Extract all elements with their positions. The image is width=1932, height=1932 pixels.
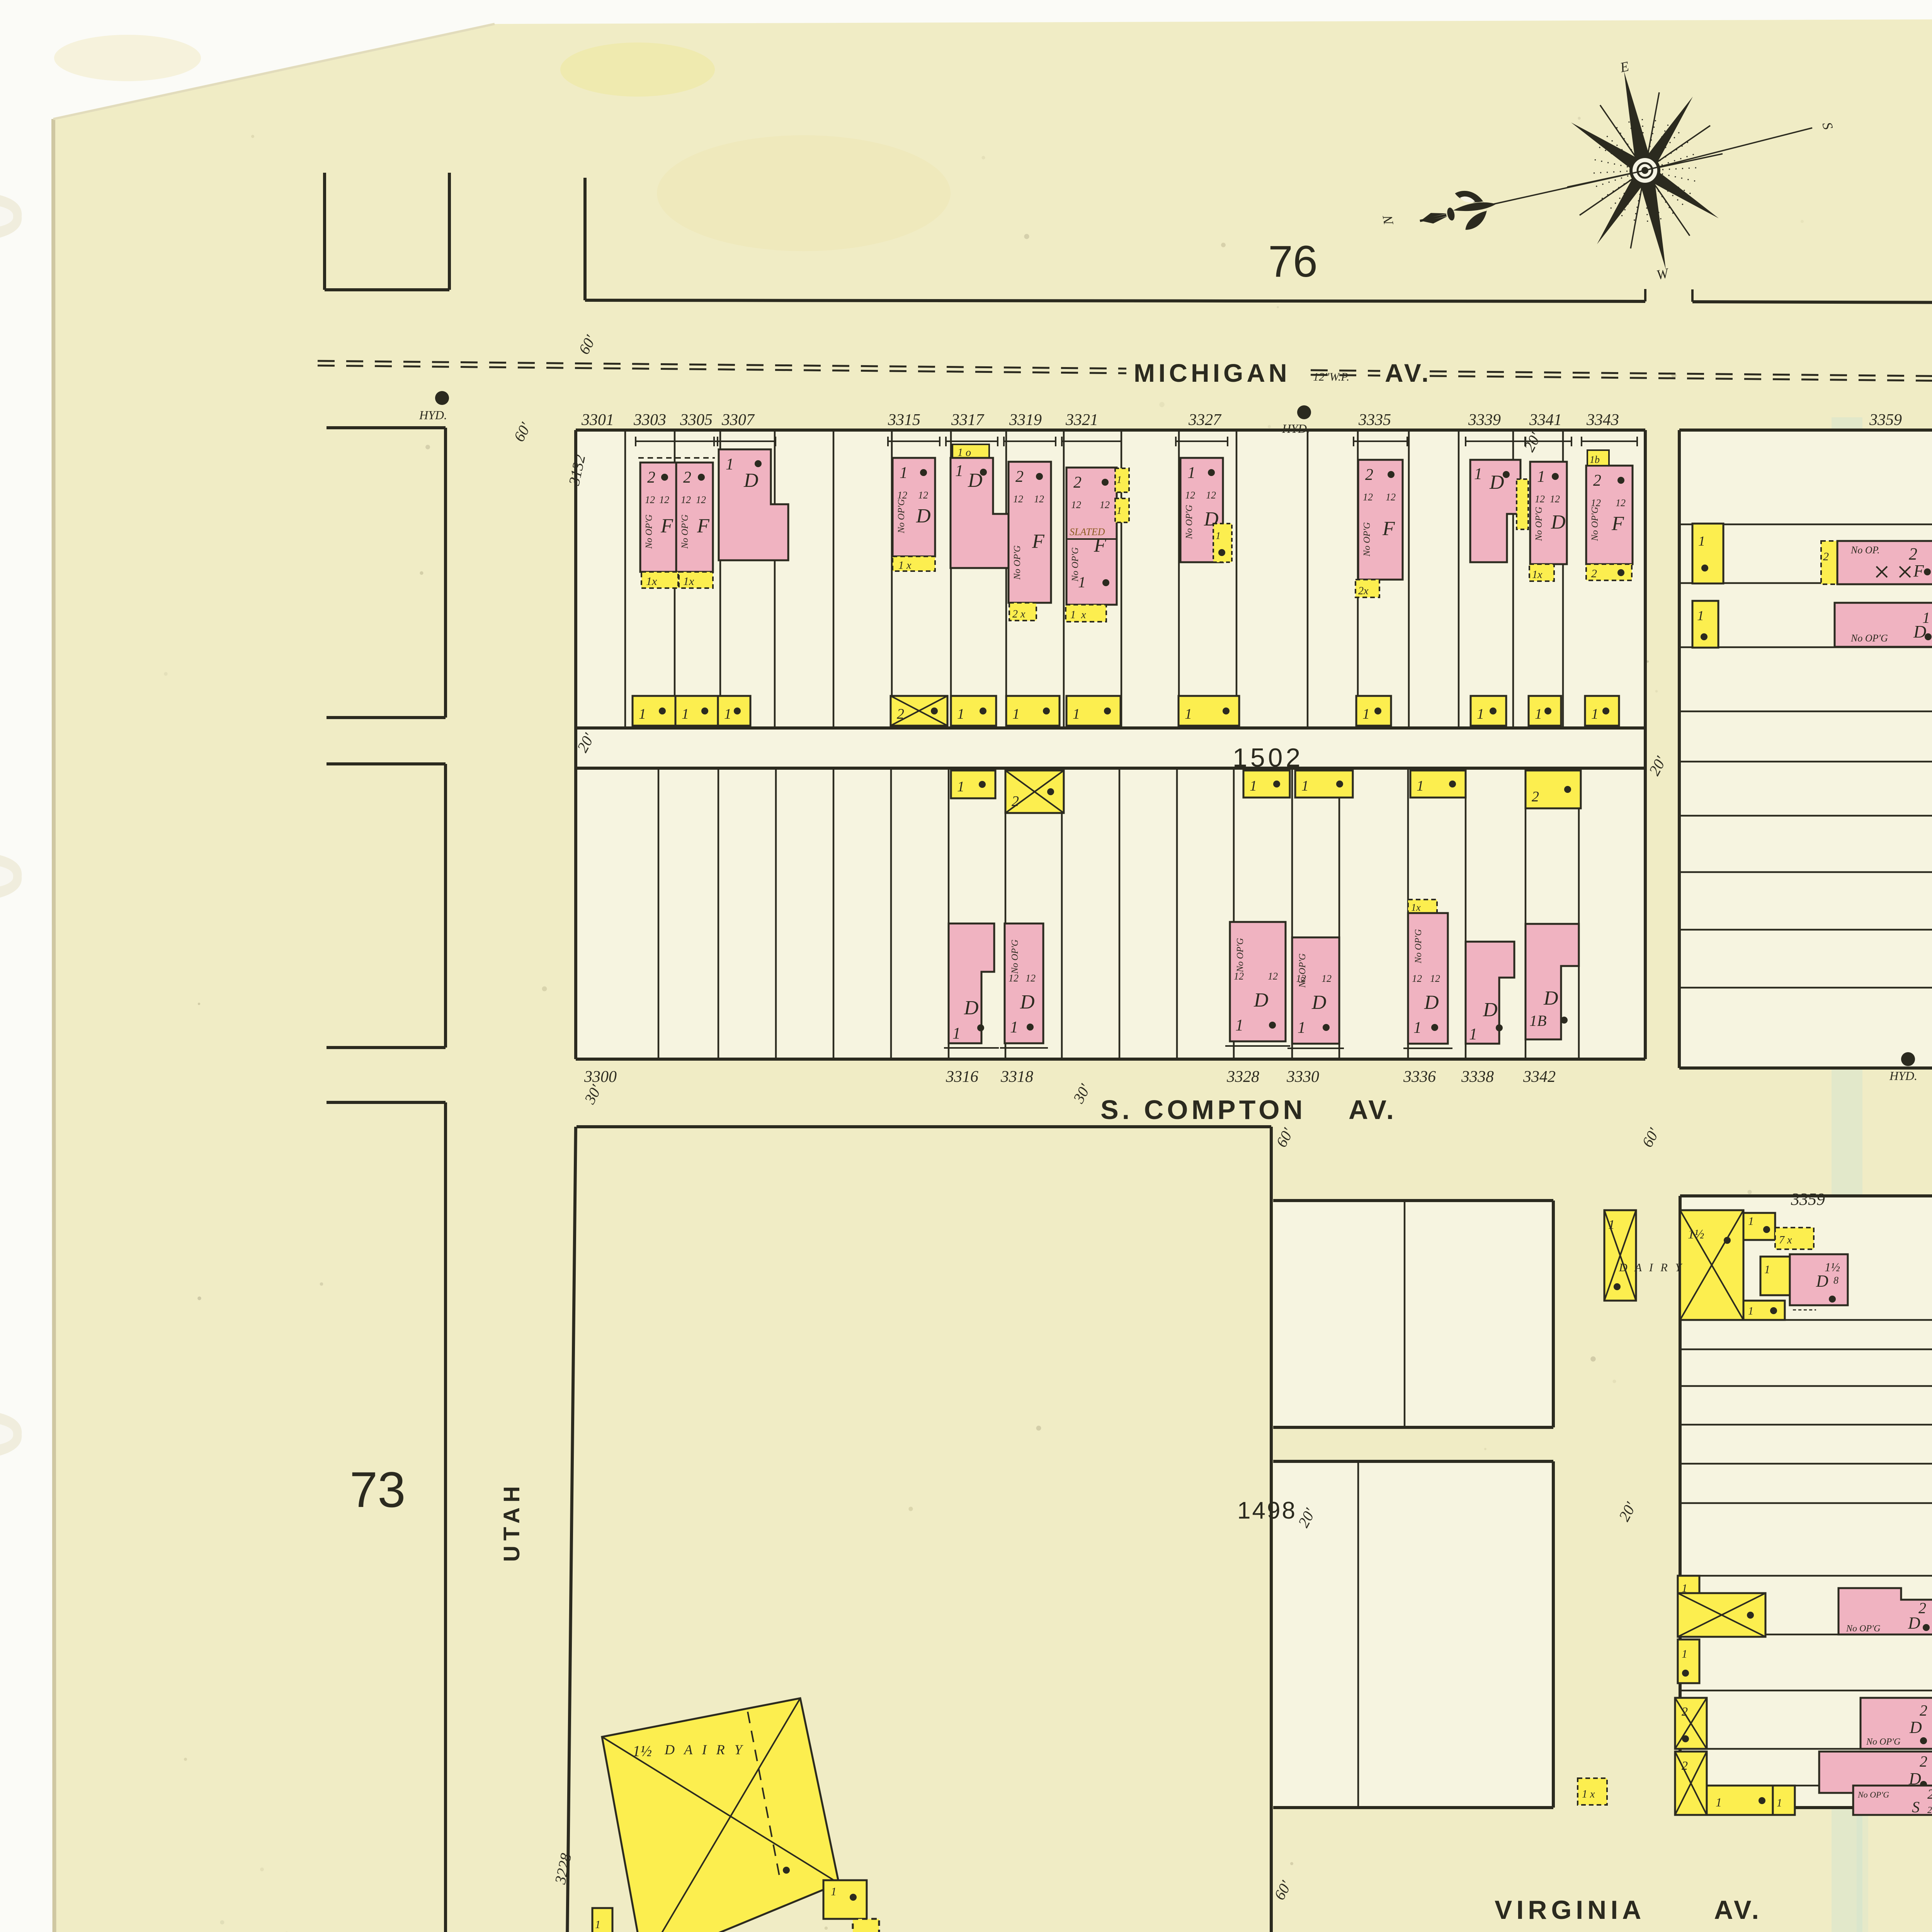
svg-text:3305: 3305 (680, 411, 713, 429)
svg-text:D A I R Y: D A I R Y (1619, 1261, 1684, 1274)
svg-text:12: 12 (1100, 499, 1110, 510)
svg-text:2: 2 (897, 706, 904, 722)
svg-text:3359: 3359 (1869, 411, 1902, 429)
svg-text:3359: 3359 (1791, 1190, 1825, 1209)
svg-text:12: 12 (1535, 493, 1545, 505)
svg-text:12: 12 (1013, 493, 1023, 505)
svg-text:1: 1 (1608, 1218, 1615, 1232)
svg-text:D: D (1909, 1718, 1922, 1737)
svg-text:No OP'G: No OP'G (1857, 1790, 1889, 1799)
svg-text:D: D (1483, 999, 1498, 1021)
svg-text:2x: 2x (1358, 585, 1369, 597)
svg-text:3316: 3316 (946, 1068, 978, 1086)
svg-text:No OP'G: No OP'G (680, 515, 690, 549)
svg-text:2: 2 (1365, 466, 1373, 484)
svg-text:1: 1 (1235, 1017, 1243, 1034)
svg-text:1: 1 (1298, 1019, 1306, 1037)
svg-text:D: D (743, 469, 759, 492)
svg-text:2: 2 (1015, 468, 1024, 486)
svg-text:2: 2 (1823, 550, 1829, 563)
svg-text:3319: 3319 (1009, 411, 1042, 429)
svg-text:73: 73 (350, 1461, 406, 1518)
svg-text:1: 1 (1117, 474, 1122, 485)
svg-text:1: 1 (1591, 706, 1599, 722)
svg-text:HYD.: HYD. (1889, 1069, 1917, 1083)
svg-text:12: 12 (1185, 490, 1195, 501)
svg-text:2: 2 (1073, 474, 1082, 492)
svg-text:2: 2 (1682, 1704, 1688, 1718)
svg-text:SLATED: SLATED (1070, 526, 1105, 537)
svg-text:1: 1 (957, 706, 964, 722)
svg-text:No OP'G: No OP'G (1184, 505, 1194, 539)
svg-text:1: 1 (726, 456, 734, 473)
svg-text:No OP'G: No OP'G (1534, 507, 1544, 541)
svg-text:12: 12 (1268, 971, 1278, 982)
svg-text:1: 1 (1535, 706, 1542, 722)
svg-text:1: 1 (1764, 1263, 1770, 1276)
svg-text:2: 2 (1593, 472, 1601, 490)
svg-text:D: D (1908, 1614, 1920, 1633)
svg-text:1: 1 (1185, 706, 1192, 722)
svg-text:12: 12 (659, 494, 669, 505)
svg-text:12: 12 (681, 494, 691, 505)
svg-text:1: 1 (831, 1885, 837, 1898)
svg-text:1: 1 (1477, 706, 1484, 722)
svg-text:12: 12 (1363, 492, 1373, 503)
svg-text:D: D (1551, 511, 1566, 533)
svg-text:No OP'G: No OP'G (1298, 954, 1308, 988)
svg-text:3336: 3336 (1403, 1068, 1436, 1086)
svg-text:2: 2 (1591, 567, 1597, 580)
svg-text:1498: 1498 (1237, 1497, 1297, 1524)
svg-text:1 x: 1 x (898, 560, 912, 571)
svg-text:D: D (1311, 992, 1327, 1014)
svg-text:2: 2 (1012, 793, 1019, 810)
svg-text:D: D (1913, 622, 1926, 641)
svg-text:1: 1 (1187, 464, 1196, 482)
svg-text:3307: 3307 (721, 411, 755, 429)
svg-text:1: 1 (1417, 778, 1424, 794)
svg-text:1: 1 (1469, 1026, 1477, 1043)
svg-text:D: D (1543, 987, 1558, 1009)
svg-text:1: 1 (639, 706, 646, 722)
svg-text:F: F (1382, 518, 1395, 540)
svg-text:76: 76 (1268, 237, 1318, 286)
svg-text:F: F (1094, 534, 1107, 556)
svg-text:HYD.: HYD. (1282, 422, 1310, 435)
svg-text:1: 1 (682, 706, 689, 722)
svg-text:1: 1 (724, 706, 731, 722)
svg-text:1½: 1½ (633, 1742, 652, 1760)
svg-text:1: 1 (1698, 533, 1705, 549)
svg-text:1: 1 (957, 779, 964, 795)
svg-text:1B: 1B (1529, 1012, 1546, 1029)
svg-text:1½: 1½ (1688, 1227, 1704, 1242)
svg-text:12: 12 (645, 494, 655, 505)
svg-text:1: 1 (955, 462, 963, 480)
svg-text:1: 1 (1250, 778, 1257, 794)
svg-text:1: 1 (858, 1930, 863, 1932)
svg-text:3335: 3335 (1358, 411, 1391, 429)
svg-text:1: 1 (1413, 1019, 1422, 1037)
svg-text:1: 1 (1010, 1019, 1018, 1036)
svg-text:12: 12 (696, 494, 706, 505)
svg-text:AV.: AV. (1385, 359, 1431, 387)
svg-text:D: D (1489, 471, 1504, 493)
svg-text:3341: 3341 (1529, 411, 1562, 429)
svg-text:1: 1 (1697, 608, 1704, 623)
svg-text:No OP'G: No OP'G (644, 515, 654, 549)
svg-text:3338: 3338 (1461, 1068, 1494, 1086)
svg-text:1: 1 (1716, 1795, 1722, 1809)
svg-text:No OP.: No OP. (1850, 544, 1880, 556)
svg-text:1: 1 (1474, 465, 1482, 483)
svg-text:12: 12 (1026, 973, 1036, 984)
svg-text:1: 1 (1117, 505, 1122, 516)
svg-text:12: 12 (1071, 499, 1081, 510)
svg-text:3315: 3315 (888, 411, 920, 429)
svg-text:F: F (697, 515, 710, 537)
svg-text:12: 12 (1321, 973, 1332, 984)
svg-text:D: D (964, 997, 979, 1019)
svg-text:No OP'G: No OP'G (1012, 546, 1022, 580)
svg-text:1: 1 (952, 1025, 961, 1043)
svg-text:3303: 3303 (633, 411, 666, 429)
svg-text:3321: 3321 (1065, 411, 1098, 429)
svg-text:8: 8 (1833, 1275, 1838, 1286)
svg-text:1b: 1b (1590, 454, 1600, 465)
svg-text:26': 26' (1927, 1805, 1932, 1815)
svg-text:12: 12 (1412, 973, 1422, 984)
svg-text:3327: 3327 (1188, 411, 1222, 429)
svg-text:1x: 1x (646, 575, 657, 588)
svg-text:S: S (1912, 1798, 1920, 1816)
svg-text:D: D (1020, 991, 1035, 1013)
svg-text:1: 1 (900, 464, 908, 482)
svg-text:12: 12 (1616, 497, 1626, 509)
svg-text:D: D (1816, 1272, 1828, 1291)
svg-text:AV.: AV. (1349, 1095, 1396, 1125)
svg-text:F: F (1913, 561, 1924, 580)
svg-text:2: 2 (1927, 1786, 1932, 1802)
svg-text:F: F (660, 515, 673, 537)
svg-text:1x: 1x (683, 575, 694, 588)
svg-text:1: 1 (595, 1919, 600, 1931)
svg-text:No OP'G: No OP'G (1235, 938, 1245, 973)
svg-text:1x: 1x (1532, 569, 1543, 581)
svg-text:No OP'G: No OP'G (1362, 522, 1372, 557)
svg-text:No OP'G: No OP'G (1010, 940, 1020, 974)
svg-text:1: 1 (1748, 1215, 1754, 1228)
svg-text:12"W.P.: 12"W.P. (1313, 371, 1349, 383)
svg-text:1: 1 (1777, 1797, 1782, 1809)
svg-text:No OP'G: No OP'G (1590, 507, 1600, 541)
svg-text:3318: 3318 (1000, 1068, 1033, 1086)
svg-text:1 o: 1 o (957, 447, 971, 459)
svg-text:D A I R Y: D A I R Y (664, 1742, 745, 1757)
svg-text:2: 2 (1909, 544, 1917, 563)
svg-text:F: F (1032, 531, 1045, 553)
svg-text:D: D (1424, 992, 1439, 1014)
svg-text:1 x: 1 x (1070, 609, 1086, 621)
svg-text:1: 1 (1078, 573, 1086, 591)
svg-text:1: 1 (1216, 530, 1221, 541)
svg-text:1: 1 (1301, 778, 1309, 794)
svg-text:HYD.: HYD. (419, 408, 447, 422)
svg-text:2: 2 (1532, 789, 1539, 805)
svg-text:S. COMPTON: S. COMPTON (1100, 1095, 1306, 1125)
svg-text:12: 12 (1206, 490, 1216, 501)
svg-text:MICHIGAN: MICHIGAN (1134, 359, 1291, 387)
svg-text:2: 2 (647, 469, 655, 486)
svg-text:3301: 3301 (581, 411, 614, 429)
svg-text:2: 2 (1682, 1759, 1688, 1772)
svg-text:12: 12 (1386, 492, 1396, 503)
svg-text:2: 2 (1920, 1753, 1927, 1770)
svg-text:3343: 3343 (1586, 411, 1619, 429)
svg-text:1502: 1502 (1233, 743, 1303, 772)
svg-text:No OP'G: No OP'G (1866, 1737, 1900, 1747)
svg-text:1 x: 1 x (1582, 1788, 1595, 1800)
svg-text:No OP'G: No OP'G (1413, 929, 1423, 964)
svg-text:3342: 3342 (1523, 1068, 1556, 1086)
svg-text:3317: 3317 (951, 411, 985, 429)
svg-text:12: 12 (1430, 973, 1440, 984)
svg-text:1: 1 (1748, 1305, 1753, 1317)
svg-text:No OP'G: No OP'G (896, 499, 906, 534)
svg-text:12: 12 (1009, 973, 1019, 984)
svg-text:AV.: AV. (1714, 1895, 1762, 1925)
svg-text:3328: 3328 (1226, 1068, 1259, 1086)
svg-text:1: 1 (1073, 706, 1080, 722)
svg-text:3330: 3330 (1286, 1068, 1319, 1086)
svg-text:1: 1 (1362, 706, 1370, 722)
svg-text:2: 2 (683, 469, 691, 486)
svg-text:1x: 1x (1411, 902, 1421, 913)
svg-text:VIRGINIA: VIRGINIA (1495, 1895, 1645, 1925)
svg-text:No OP'G: No OP'G (1846, 1624, 1880, 1634)
svg-text:12: 12 (1550, 493, 1560, 505)
svg-text:1: 1 (1537, 468, 1545, 486)
svg-text:7 x: 7 x (1779, 1234, 1792, 1246)
svg-text:D: D (916, 505, 931, 527)
svg-text:3339: 3339 (1468, 411, 1501, 429)
svg-text:UTAH: UTAH (499, 1481, 524, 1562)
svg-text:12: 12 (1034, 493, 1044, 505)
svg-text:F: F (1611, 513, 1624, 535)
svg-text:No OP'G: No OP'G (1850, 633, 1888, 644)
svg-text:1: 1 (1012, 706, 1020, 722)
svg-text:2 x: 2 x (1012, 608, 1026, 620)
svg-text:1: 1 (1682, 1648, 1687, 1660)
svg-text:D: D (1253, 989, 1269, 1011)
svg-text:12: 12 (918, 490, 928, 501)
svg-text:2: 2 (1920, 1702, 1927, 1719)
